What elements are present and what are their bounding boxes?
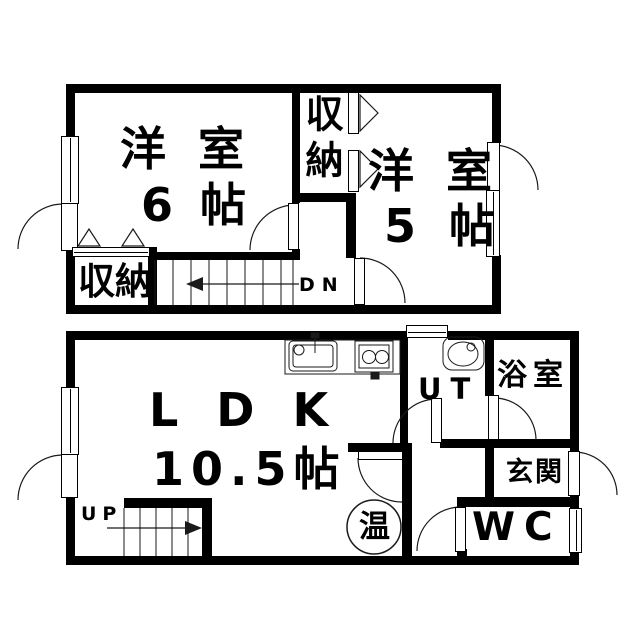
window-ut-top: [406, 325, 448, 338]
kitchen-stove-inner: [359, 345, 389, 368]
door-arc-entrance: [574, 452, 617, 495]
door-leaf-room6: [288, 203, 299, 250]
door-arc-2f-left: [18, 204, 63, 249]
sink-drain-icon: [294, 345, 304, 355]
stairs-2f-treads: [155, 260, 293, 305]
room5-name: 洋室: [368, 148, 524, 194]
sink-faucet-base: [311, 333, 319, 338]
floorplan-canvas: 洋室 6帖 収納 洋室 5帖 収納 DN LDK 10.5帖 UT 浴室 玄関 …: [0, 0, 640, 640]
stairs-down-arrow: [186, 277, 299, 291]
room6-size: 6帖: [141, 182, 273, 228]
ut-washbasin-bowl: [448, 342, 478, 366]
wc-label: WC: [472, 508, 562, 547]
door-leaf-nook: [358, 451, 403, 460]
door-arc-1f-left: [18, 455, 63, 500]
door-leaf-2f-left: [61, 202, 78, 251]
closet-top-label: 収納: [302, 94, 340, 186]
kitchen-sink-inner: [293, 345, 333, 367]
closet-slider-door: [72, 247, 150, 257]
window-1f-left: [61, 387, 79, 455]
ldk-name: LDK: [149, 387, 366, 433]
fold-door-icon: [360, 95, 378, 131]
fold-door-icon: [78, 229, 100, 246]
stove-burner-icon: [376, 351, 389, 364]
stairs-up-label: UP: [81, 505, 122, 524]
water-heater-label: 温: [359, 512, 390, 543]
door-leaf-entrance: [568, 451, 580, 496]
door-leaf-1f-left: [61, 453, 78, 498]
door-leaf-bath: [488, 395, 499, 440]
stairs-down-label: DN: [299, 276, 345, 295]
kitchen-stove: [355, 341, 393, 372]
door-leaf-wc: [455, 507, 466, 552]
stove-knob: [371, 373, 379, 379]
room6-name: 洋室: [120, 126, 276, 172]
stairs-1f-treads: [124, 508, 188, 556]
window-wc-right: [569, 508, 582, 553]
ut-label: UT: [418, 375, 479, 404]
closet-bottom-label: 収納: [78, 263, 152, 300]
ldk-size: 10.5帖: [152, 446, 347, 492]
door-arc-bath: [494, 398, 536, 440]
entrance-label: 玄関: [506, 459, 564, 486]
stove-burner-icon: [363, 351, 376, 364]
window-2f-left: [61, 136, 79, 204]
room5-size: 5帖: [384, 203, 528, 249]
door-arc-room5: [360, 258, 405, 303]
bath-label: 浴室: [497, 361, 569, 391]
fold-door-leaf-closet-top-b: [348, 150, 359, 192]
fold-door-leaf-closet-top-a: [348, 92, 359, 134]
door-arc-nook: [358, 458, 402, 502]
door-leaf-room5: [354, 258, 365, 305]
